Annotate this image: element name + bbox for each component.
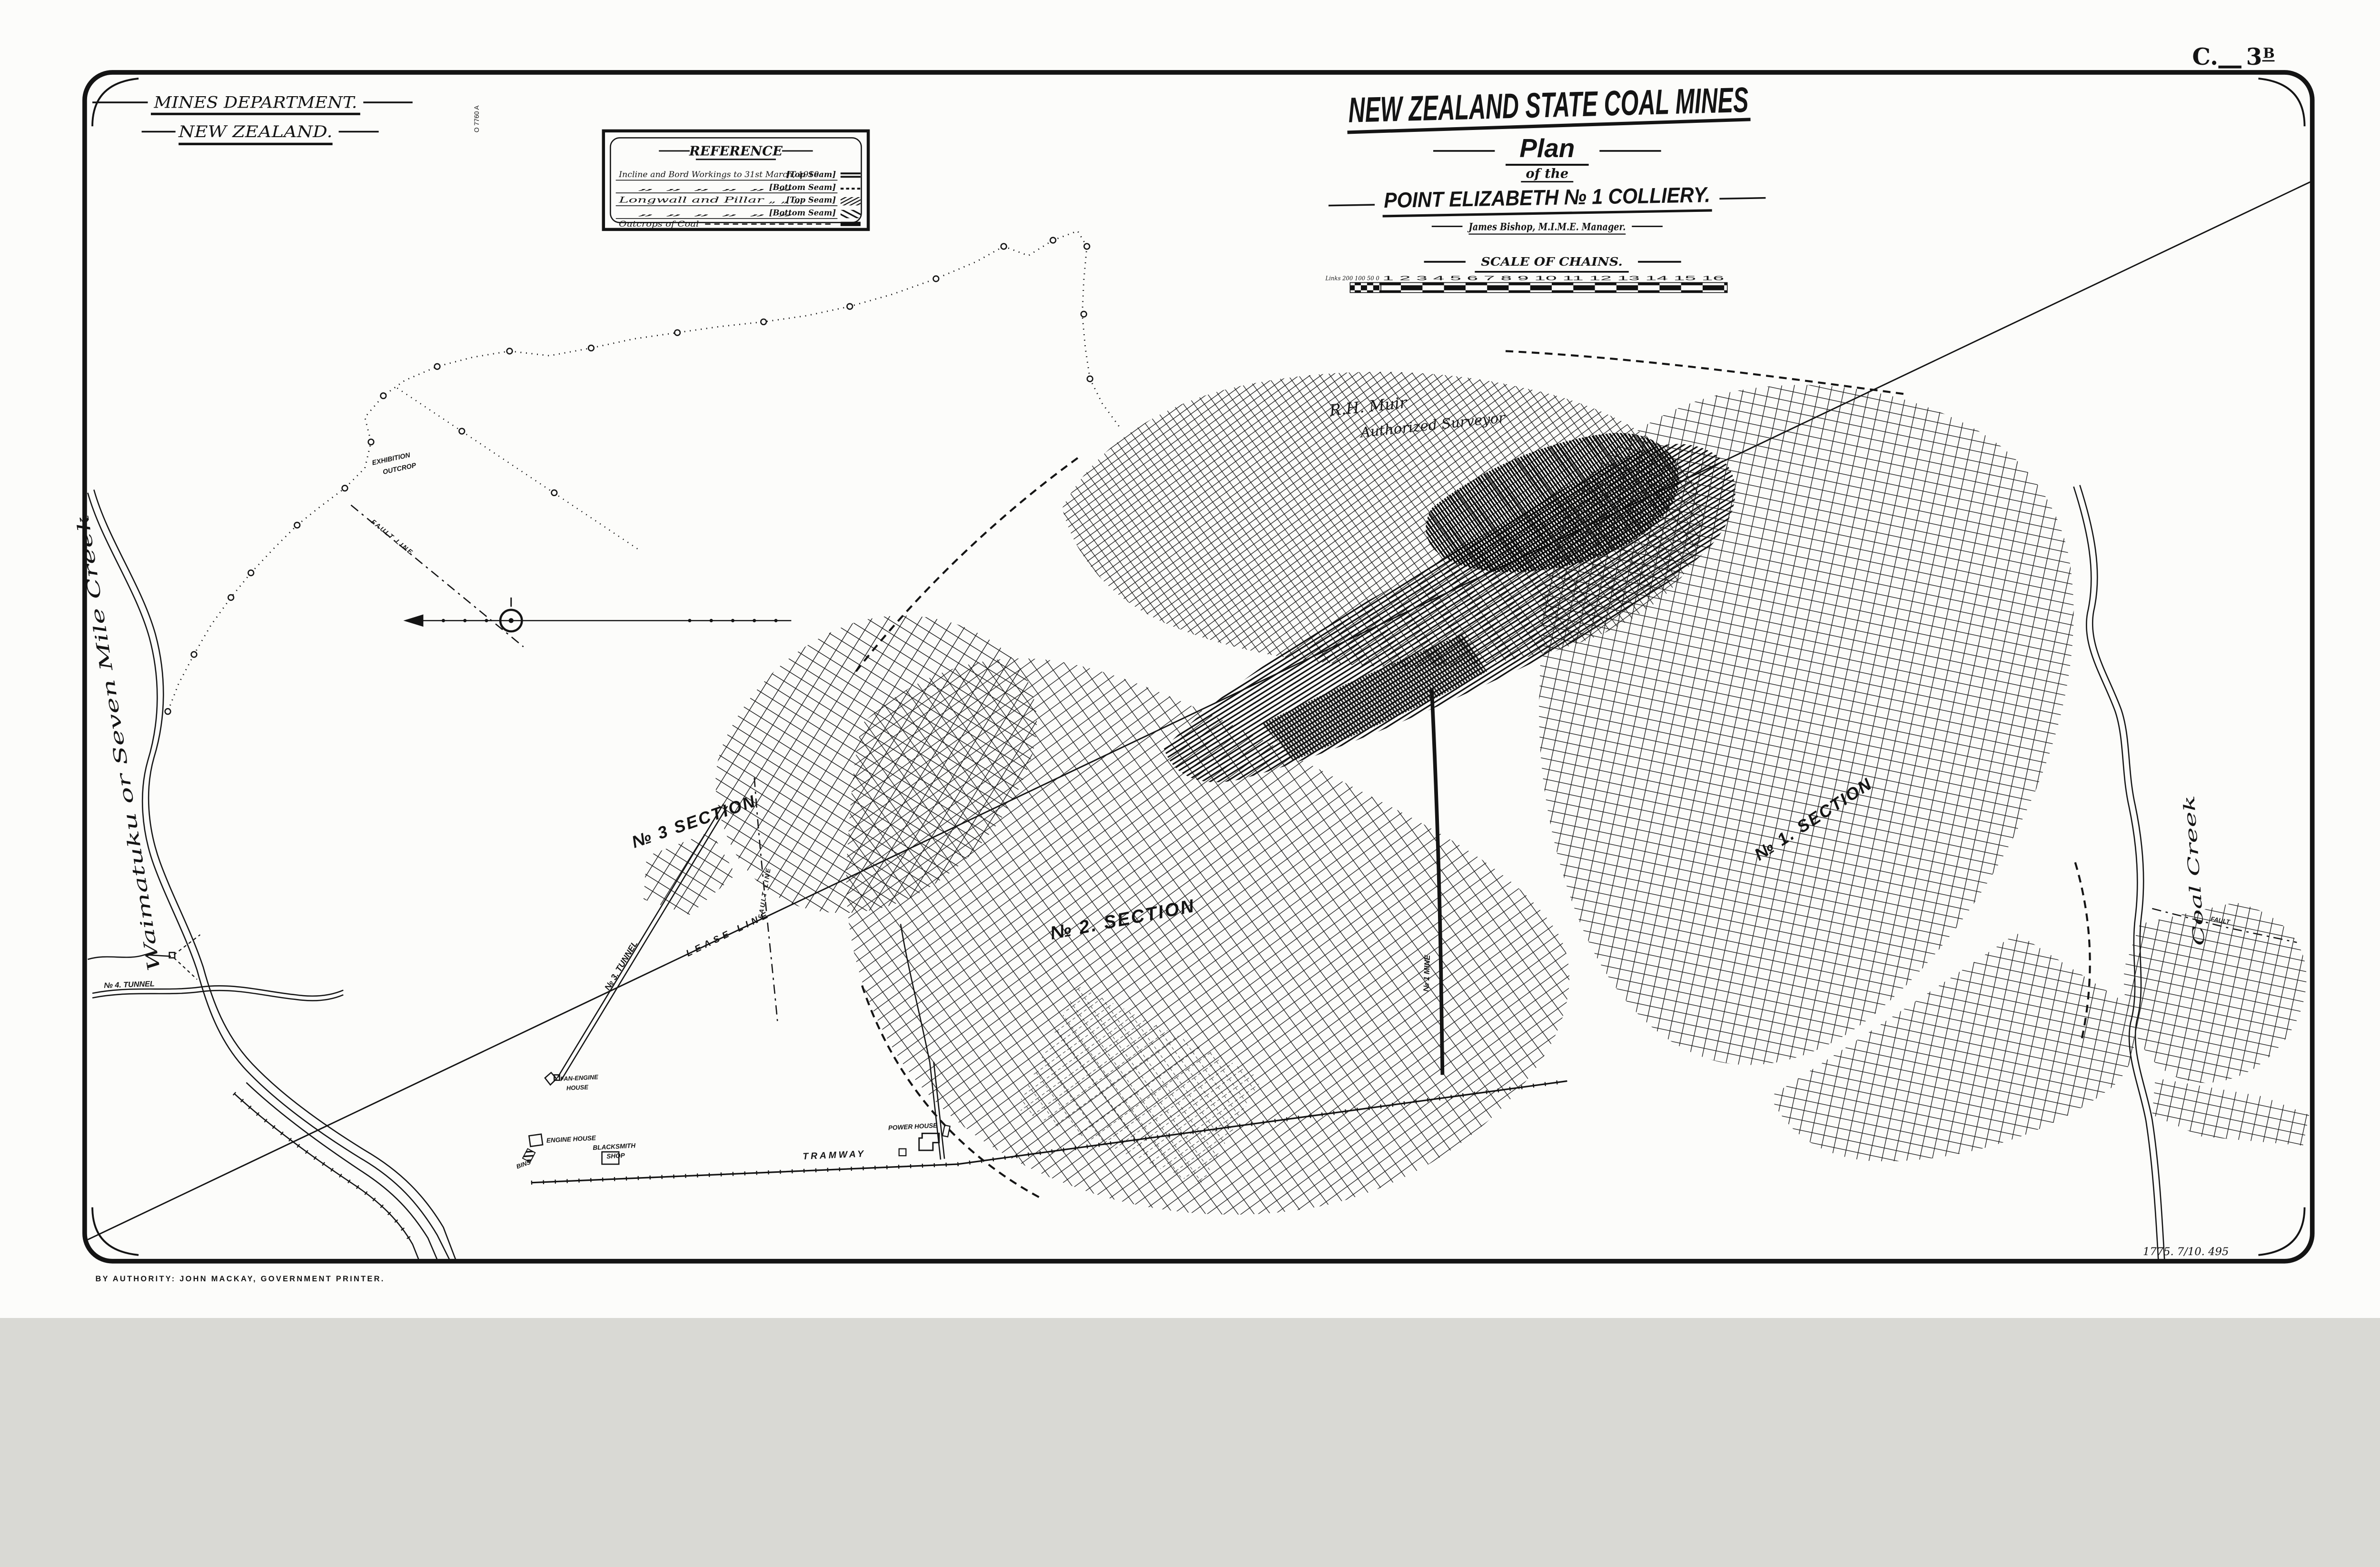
scale-title: SCALE OF CHAINS. [1481,255,1623,269]
department-line1: MINES DEPARTMENT. [153,93,357,112]
blacksmith-label-line2: SHOP [606,1152,625,1160]
scale-bar-chains [1381,282,1727,292]
file-number: O 7760 A [473,105,480,133]
legend-symbol-solid-bar [841,222,861,226]
map-canvas: C. 3 B MINES DEPARTMENT. NEW ZEALAND. O … [0,0,2380,1318]
plate-no: 3 [2246,43,2262,70]
scale-links-labels: Links 200 100 50 0 [1325,275,1380,282]
plan-connector: of the [1526,166,1568,181]
scale-chain-labels: 1 2 3 4 5 6 7 8 9 10 11 12 13 14 15 16 [1382,275,1724,282]
ornament-dash [1719,198,1765,199]
department-line2: NEW ZEALAND. [178,122,333,141]
mine-no1-label: № 1 MINE [1422,954,1432,992]
authority-imprint: BY AUTHORITY: JOHN MACKAY, GOVERNMENT PR… [96,1275,385,1283]
scale-bar-links [1350,282,1381,292]
legend-row-seam: [Bottom Seam] [769,208,836,217]
legend-row-label: Outcrops of Coal [619,220,699,229]
legend-symbol-fine-hatch [841,197,861,205]
plate-prefix: C. [2192,43,2218,70]
scanned-mine-plan: C. 3 B MINES DEPARTMENT. NEW ZEALAND. O … [0,0,2380,1318]
legend-row-seam: [Bottom Seam] [769,183,836,192]
legend-row-label: Longwall and Pillar „ „ „ [618,196,800,205]
legend-title: REFERENCE [689,144,783,159]
plan-doc-type: Plan [1519,133,1575,163]
tunnel4-label: № 4. TUNNEL [104,979,155,990]
plate-suffix: B [2263,45,2275,61]
print-code: 1775. 7/10. 495 [2143,1246,2229,1258]
plan-manager: James Bishop, M.I.M.E. Manager. [1467,221,1626,233]
legend-row-seam: [Top Seam] [786,170,836,179]
fan-engine-label-line2: HOUSE [566,1083,589,1091]
legend-symbol-coarse-hatch [841,210,861,218]
legend-row-seam: [Top Seam] [786,196,836,205]
ornament-dash [1329,205,1375,206]
